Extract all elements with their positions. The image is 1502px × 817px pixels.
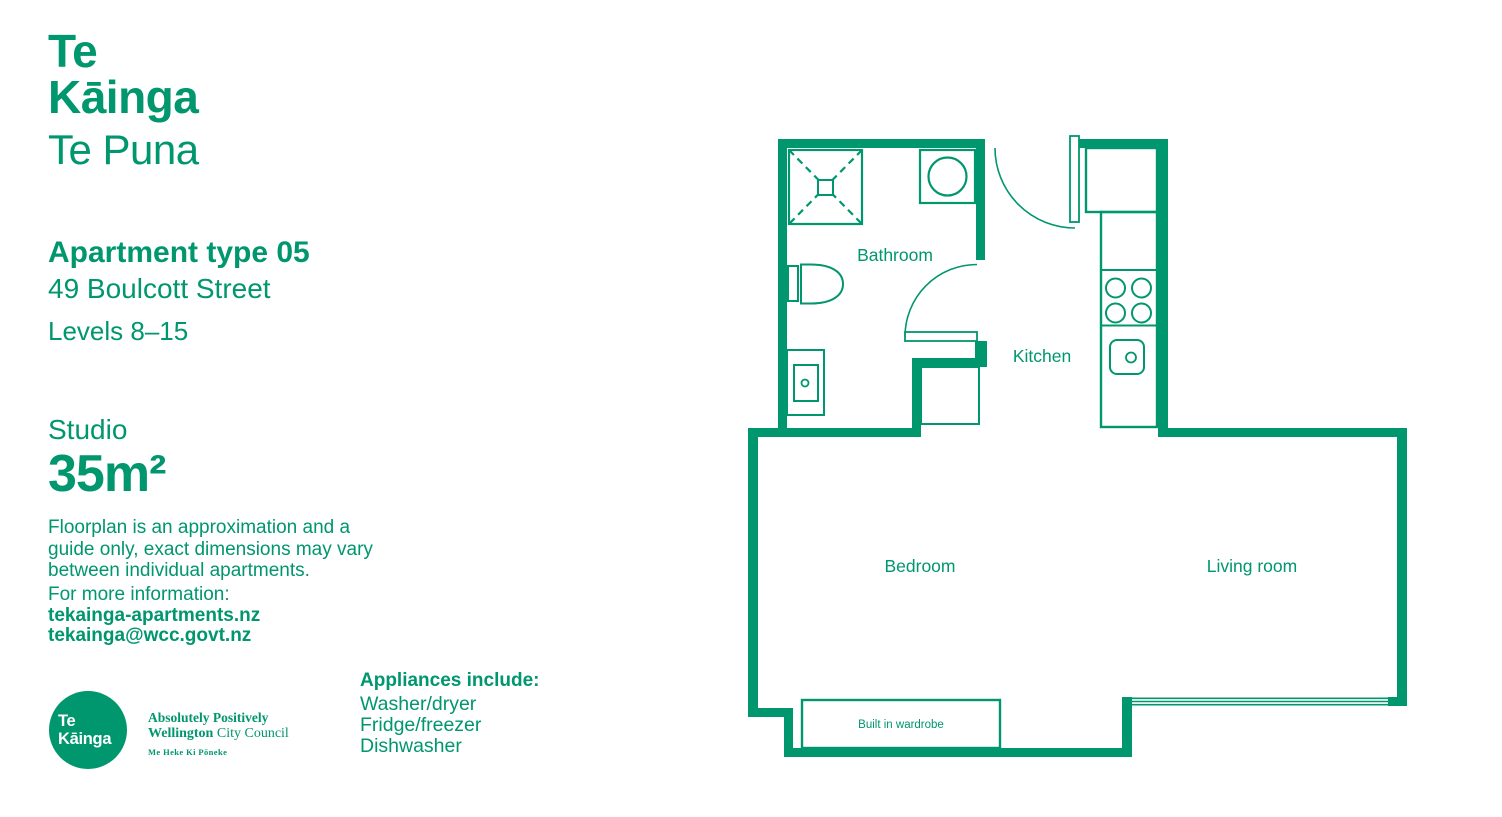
kitchen-counter <box>1086 148 1157 427</box>
bathroom-label: Bathroom <box>857 245 933 265</box>
hob-symbol <box>1106 279 1151 323</box>
living-room-label: Living room <box>1207 556 1297 576</box>
vanity-symbol <box>787 350 824 415</box>
washer-symbol <box>920 150 975 203</box>
fridge-symbol <box>1086 148 1157 212</box>
shower-symbol <box>789 150 862 224</box>
toilet-symbol <box>788 265 843 304</box>
bathroom-door-symbol <box>905 265 977 342</box>
kitchen-label: Kitchen <box>1013 346 1071 366</box>
floorplan-sheet: Te Kāinga Te Puna Apartment type 05 49 B… <box>0 0 1502 817</box>
walls <box>748 139 1407 757</box>
wardrobe-label: Built in wardrobe <box>858 719 944 731</box>
floorplan-drawing: Built in wardrobe Bathroom Kitchen Bedro… <box>0 0 1502 817</box>
wardrobe: Built in wardrobe <box>802 700 1000 748</box>
bedroom-label: Bedroom <box>884 556 955 576</box>
duct-nook <box>921 367 979 424</box>
entry-door-symbol <box>995 136 1079 228</box>
window-symbol <box>1132 698 1397 704</box>
sink-symbol <box>1110 340 1144 374</box>
